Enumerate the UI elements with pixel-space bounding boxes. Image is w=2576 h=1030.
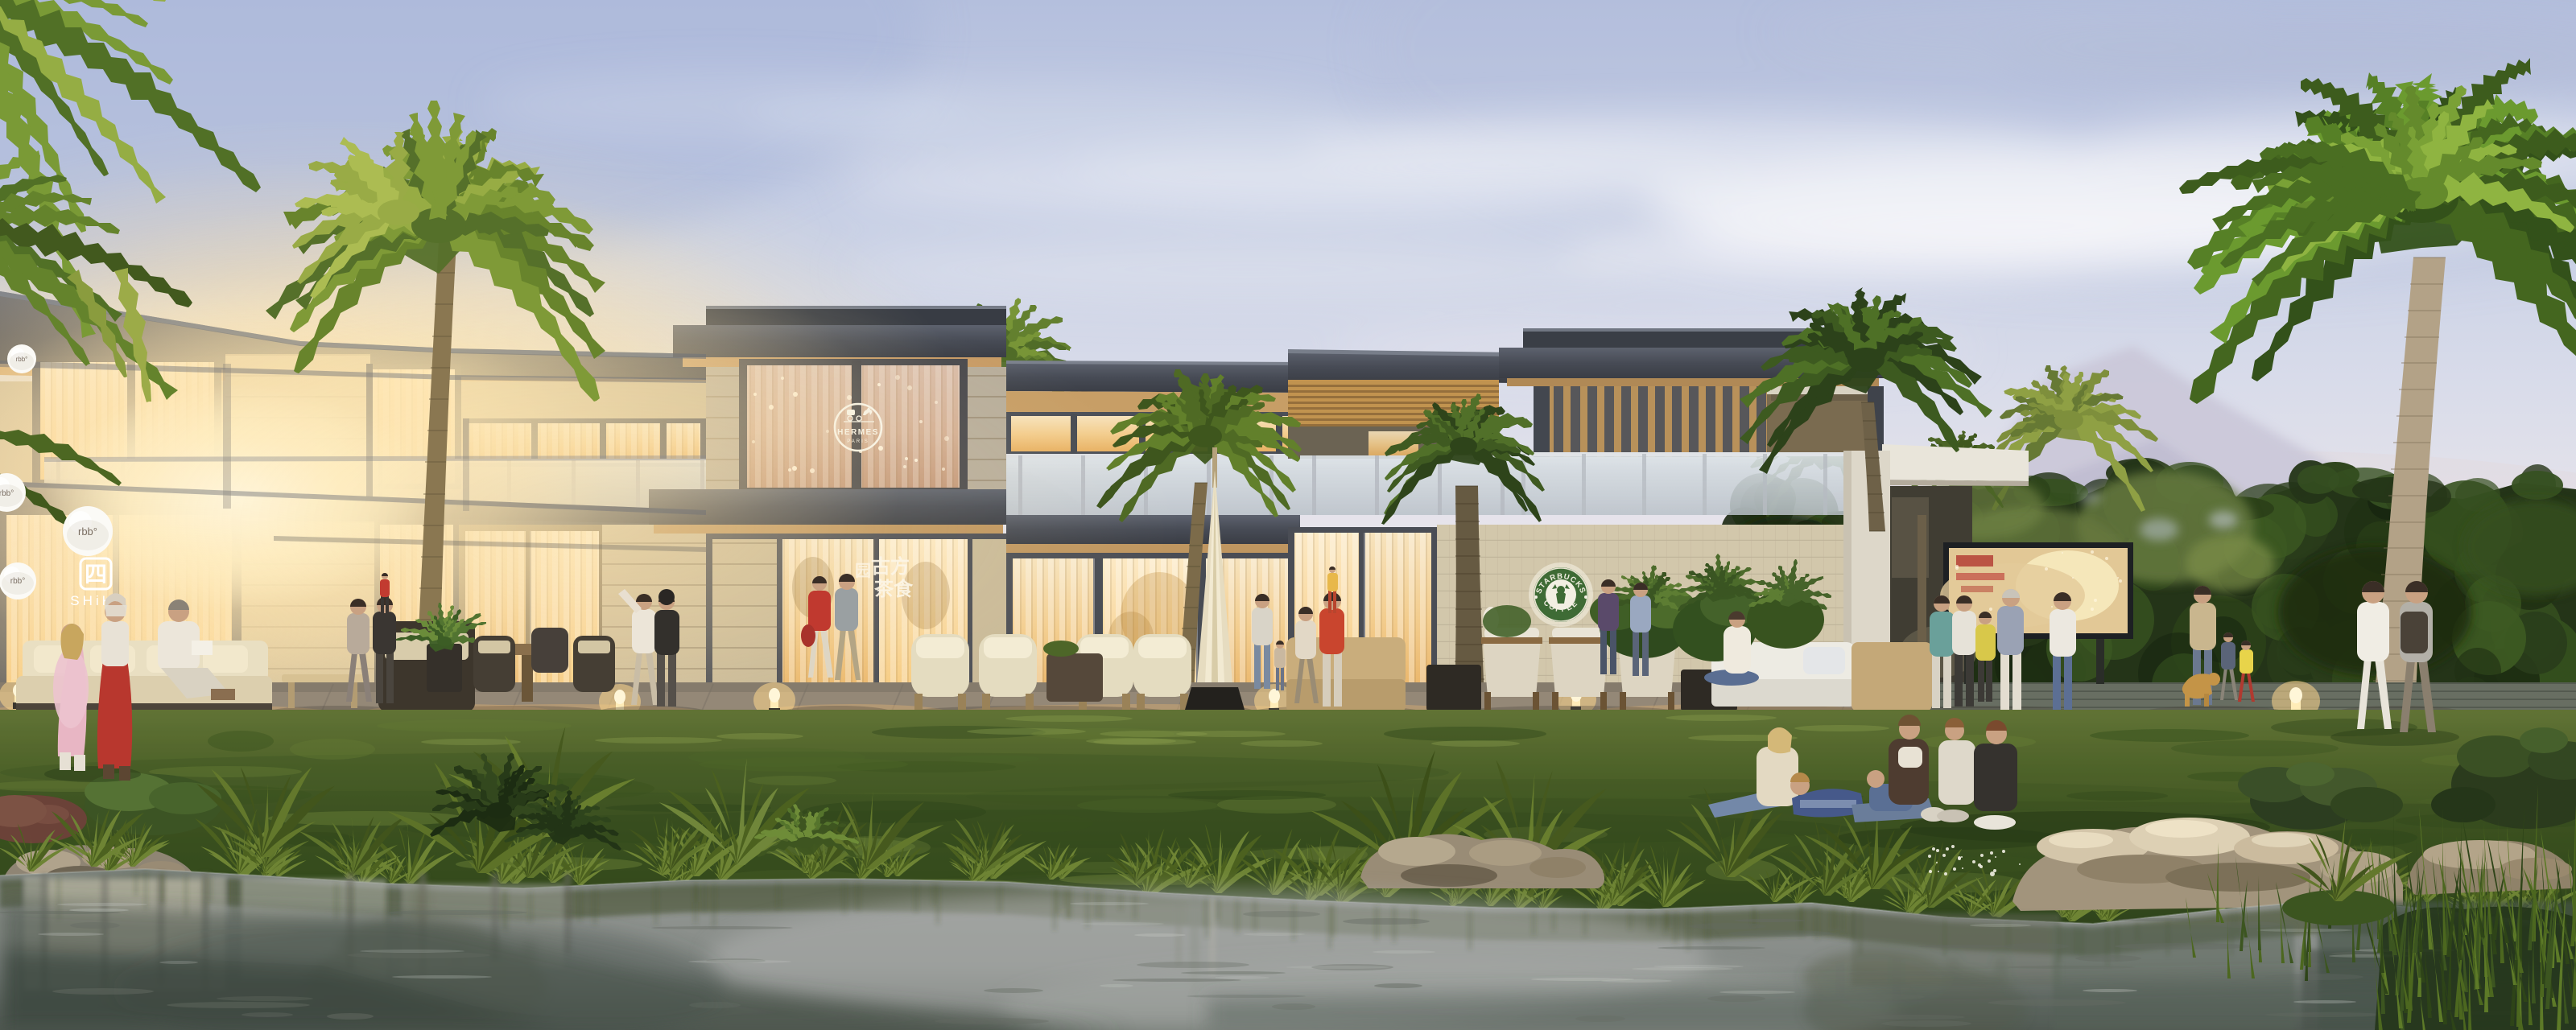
svg-text:rbb°: rbb° xyxy=(78,525,97,538)
svg-text:rbb°: rbb° xyxy=(10,577,25,586)
svg-text:四: 四 xyxy=(85,562,107,587)
svg-text:rbb°: rbb° xyxy=(16,356,28,363)
svg-text:rbb°: rbb° xyxy=(0,489,14,498)
